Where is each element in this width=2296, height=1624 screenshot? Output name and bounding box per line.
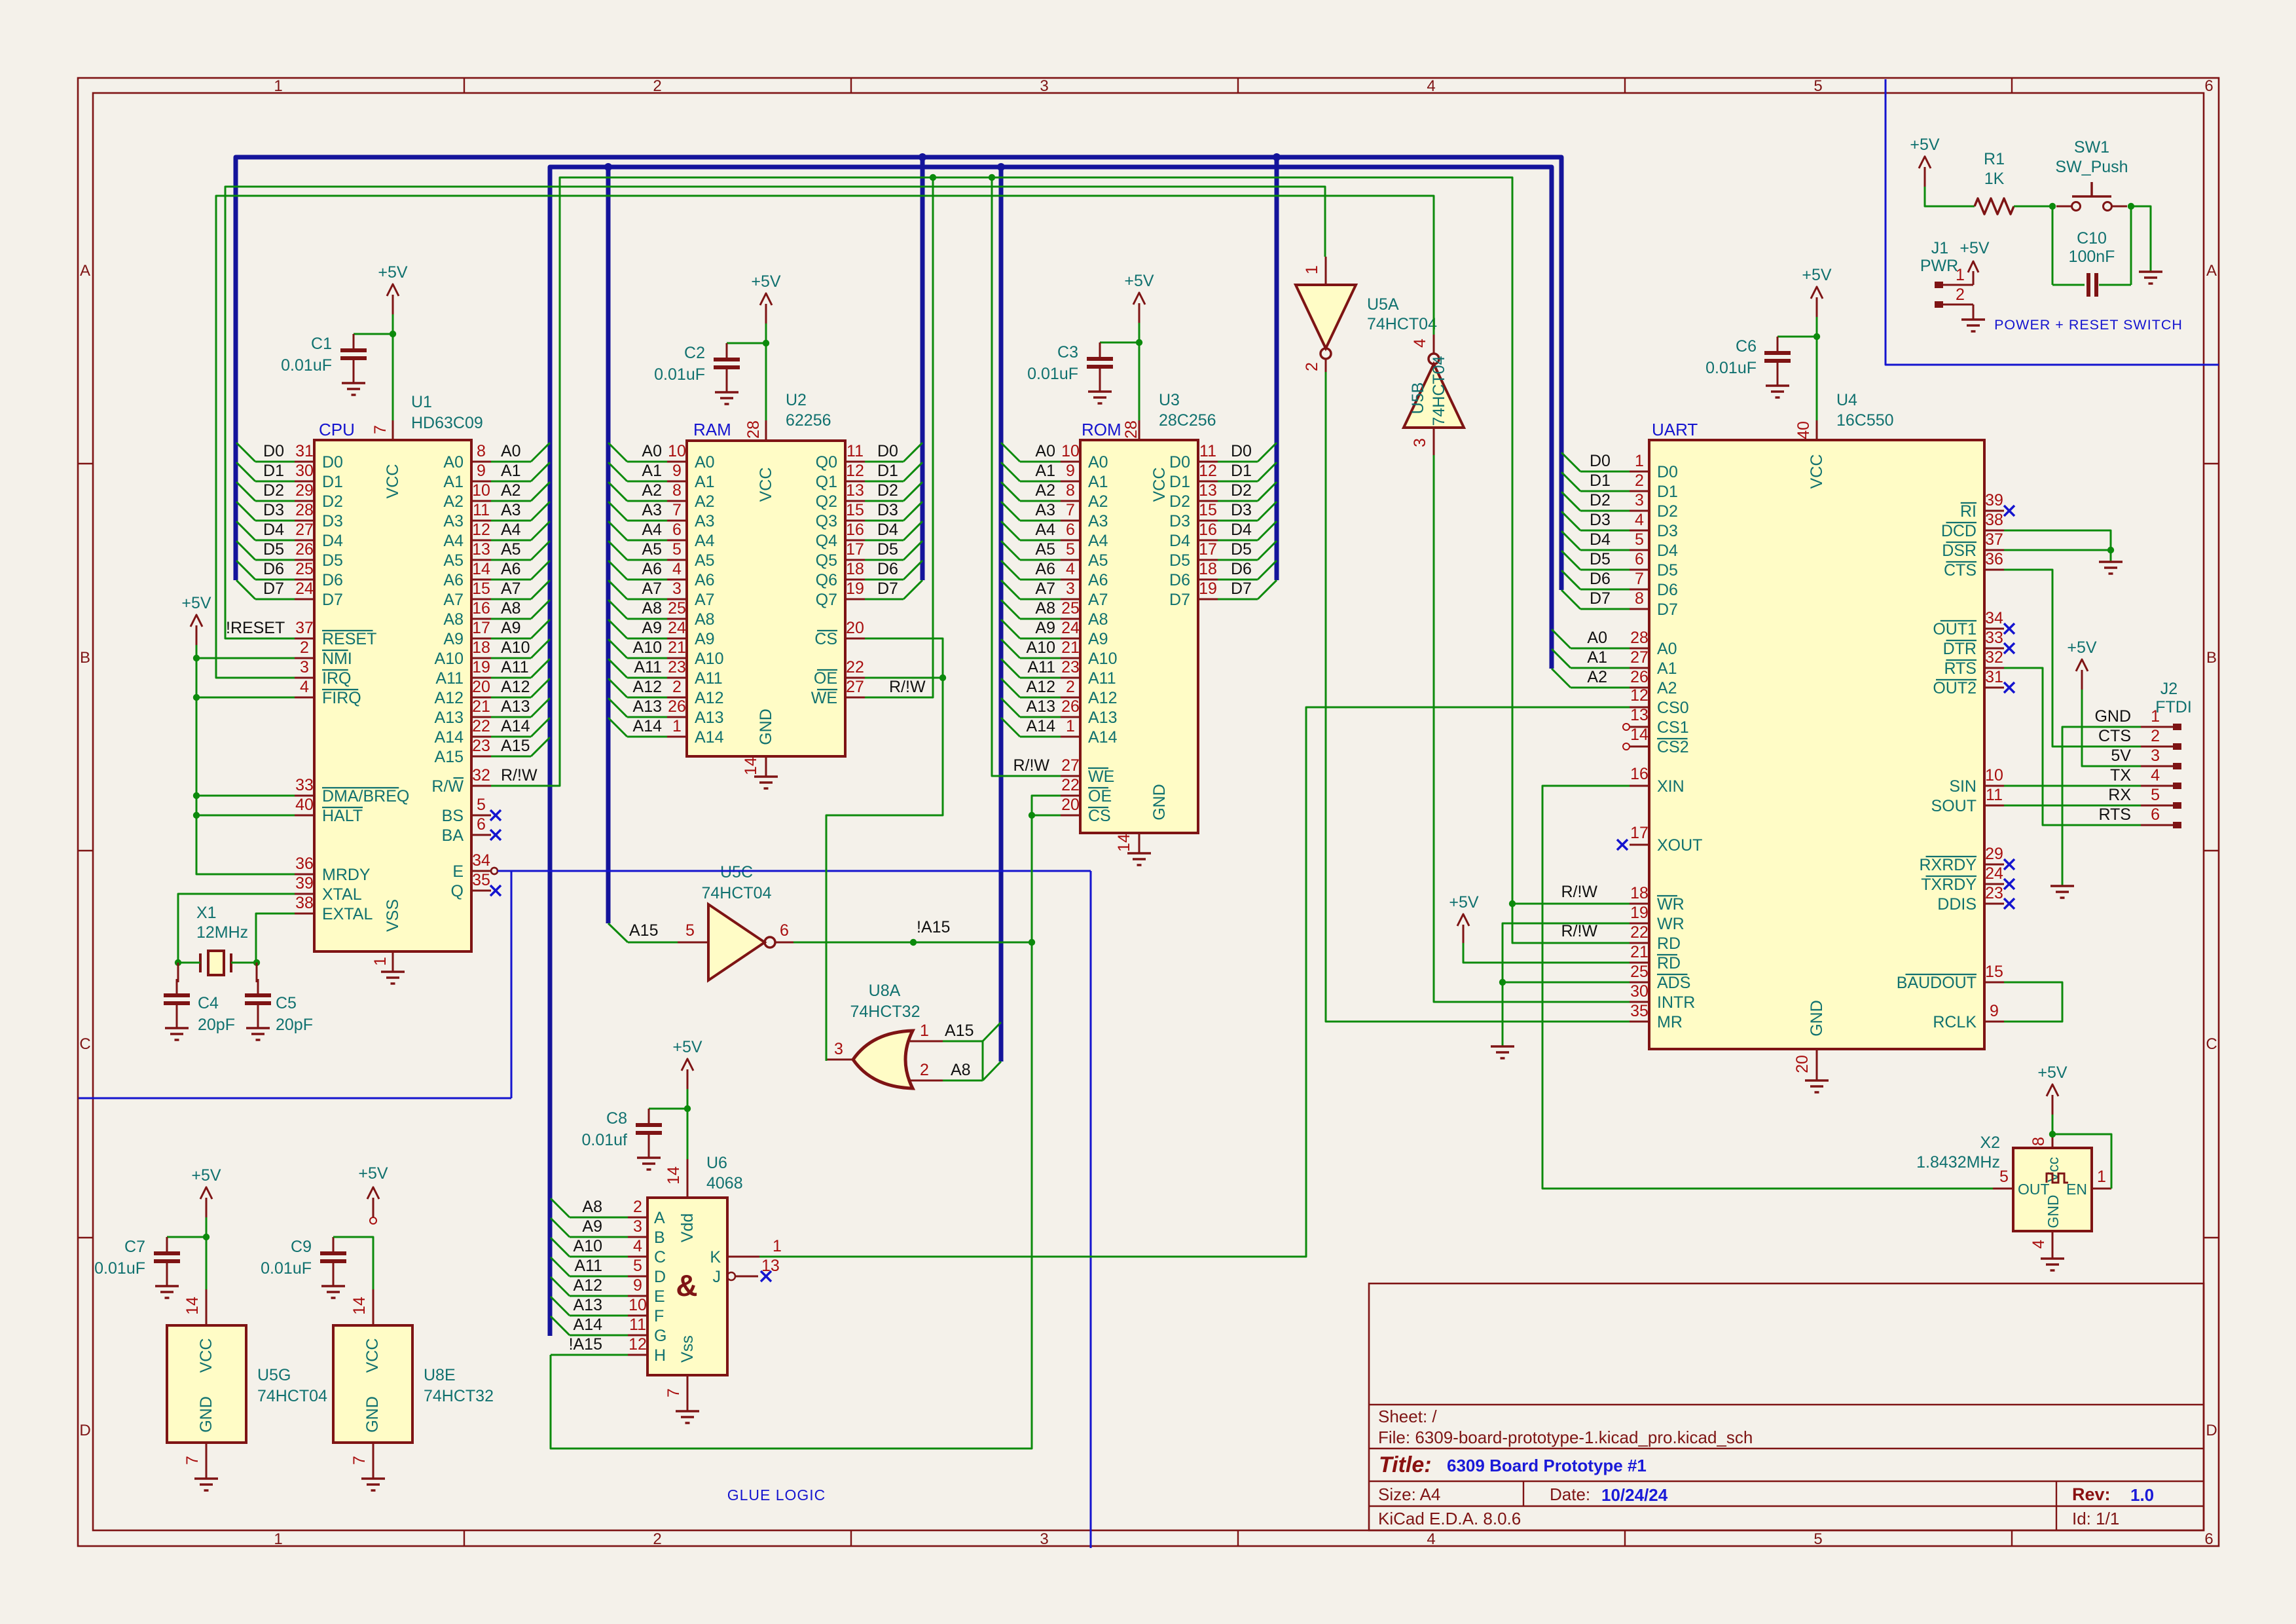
- svg-text:A11: A11: [695, 669, 723, 688]
- svg-text:28: 28: [1630, 629, 1649, 647]
- svg-text:Q7: Q7: [816, 591, 837, 609]
- svg-text:4: 4: [1411, 339, 1429, 348]
- svg-text:DCD: DCD: [1941, 522, 1977, 540]
- svg-text:6: 6: [1635, 550, 1644, 568]
- svg-text:D6: D6: [1590, 570, 1611, 588]
- svg-text:0.01uF: 0.01uF: [94, 1259, 145, 1278]
- svg-text:6: 6: [2204, 77, 2213, 95]
- svg-text:A1: A1: [1088, 473, 1108, 491]
- svg-text:U5A: U5A: [1367, 295, 1399, 314]
- svg-text:5: 5: [1066, 540, 1075, 559]
- svg-text:8: 8: [672, 481, 682, 500]
- svg-text:11: 11: [1199, 442, 1216, 460]
- svg-text:0.01uF: 0.01uF: [1705, 359, 1757, 377]
- svg-text:28: 28: [1122, 420, 1140, 439]
- svg-text:100nF: 100nF: [2069, 248, 2115, 266]
- svg-text:3: 3: [633, 1217, 642, 1236]
- svg-text:D4: D4: [322, 532, 343, 550]
- svg-text:+5V: +5V: [672, 1038, 702, 1056]
- svg-text:CTS: CTS: [1944, 561, 1977, 580]
- svg-text:2: 2: [920, 1061, 929, 1079]
- svg-text:OUT2: OUT2: [1933, 679, 1977, 697]
- svg-text:D4: D4: [1657, 542, 1678, 560]
- svg-text:+5V: +5V: [1910, 136, 1940, 154]
- svg-text:U8E: U8E: [424, 1366, 456, 1384]
- svg-text:A13: A13: [1027, 697, 1055, 716]
- svg-text:2: 2: [300, 638, 309, 657]
- svg-text:A10: A10: [633, 638, 662, 657]
- svg-text:6309 Board Prototype #1: 6309 Board Prototype #1: [1447, 1456, 1647, 1475]
- svg-text:RI: RI: [1960, 502, 1977, 521]
- svg-text:R/!W: R/!W: [889, 678, 926, 696]
- svg-text:D6: D6: [1231, 560, 1252, 578]
- svg-text:D1: D1: [1169, 473, 1190, 491]
- svg-text:22: 22: [846, 658, 864, 676]
- svg-text:4: 4: [2030, 1240, 2048, 1249]
- svg-text:40: 40: [1795, 421, 1813, 439]
- svg-text:+5V: +5V: [751, 272, 781, 291]
- svg-text:26: 26: [668, 697, 686, 716]
- svg-text:8: 8: [1066, 481, 1075, 500]
- svg-text:26: 26: [1061, 697, 1080, 716]
- svg-text:10: 10: [472, 481, 490, 500]
- svg-text:D7: D7: [1231, 580, 1252, 598]
- svg-text:U3: U3: [1159, 391, 1180, 409]
- svg-text:X2: X2: [1980, 1134, 2000, 1152]
- svg-text:4: 4: [1427, 77, 1435, 95]
- svg-text:17: 17: [1199, 540, 1217, 559]
- svg-text:7: 7: [665, 1388, 683, 1397]
- svg-text:20pF: 20pF: [198, 1016, 235, 1034]
- svg-text:14: 14: [742, 757, 760, 775]
- svg-text:J: J: [713, 1268, 721, 1286]
- svg-text:BS: BS: [442, 807, 464, 825]
- svg-text:74HCT32: 74HCT32: [424, 1387, 494, 1405]
- svg-text:1: 1: [920, 1022, 929, 1040]
- svg-text:VCC: VCC: [1150, 468, 1169, 502]
- svg-text:17: 17: [846, 540, 864, 559]
- svg-text:RTS: RTS: [2098, 805, 2131, 824]
- svg-text:A11: A11: [634, 658, 662, 676]
- svg-text:36: 36: [295, 855, 314, 873]
- svg-text:33: 33: [295, 776, 314, 794]
- svg-text:CPU: CPU: [319, 420, 355, 439]
- svg-text:28: 28: [744, 420, 763, 439]
- svg-text:A3: A3: [695, 512, 715, 530]
- svg-text:34: 34: [472, 851, 490, 870]
- svg-text:A9: A9: [642, 619, 662, 637]
- svg-text:BA: BA: [442, 826, 464, 845]
- svg-text:3: 3: [1040, 77, 1048, 95]
- svg-text:12: 12: [629, 1335, 647, 1354]
- svg-text:74HCT04: 74HCT04: [1430, 356, 1448, 426]
- svg-text:A1: A1: [443, 473, 464, 491]
- svg-text:A11: A11: [501, 658, 529, 676]
- svg-text:13: 13: [1199, 481, 1217, 500]
- svg-text:1: 1: [1956, 266, 1965, 284]
- svg-text:10: 10: [1985, 766, 2003, 784]
- svg-text:Title:: Title:: [1379, 1452, 1432, 1477]
- svg-text:D6: D6: [877, 560, 898, 578]
- svg-text:GND: GND: [363, 1396, 382, 1433]
- svg-text:1: 1: [1066, 717, 1075, 735]
- svg-text:CTS: CTS: [2098, 727, 2131, 745]
- svg-text:!A15: !A15: [917, 918, 950, 936]
- svg-text:SIN: SIN: [1949, 777, 1977, 796]
- svg-text:R/!W: R/!W: [1561, 883, 1597, 901]
- svg-text:5: 5: [477, 796, 486, 814]
- svg-text:A1: A1: [501, 462, 521, 480]
- svg-text:A8: A8: [951, 1061, 971, 1079]
- svg-text:6: 6: [477, 815, 486, 834]
- svg-text:6: 6: [2151, 805, 2160, 824]
- svg-text:2: 2: [2151, 727, 2160, 745]
- svg-text:C7: C7: [124, 1238, 145, 1256]
- svg-text:16: 16: [1199, 521, 1217, 539]
- svg-text:18: 18: [1630, 884, 1649, 902]
- svg-text:4: 4: [1066, 560, 1075, 578]
- svg-text:D0: D0: [877, 442, 898, 460]
- svg-text:A10: A10: [1088, 650, 1117, 668]
- svg-text:D4: D4: [1231, 521, 1252, 539]
- svg-text:10: 10: [629, 1296, 647, 1314]
- svg-text:E: E: [452, 862, 464, 881]
- svg-text:SW1: SW1: [2074, 138, 2109, 157]
- svg-text:D1: D1: [322, 473, 343, 491]
- svg-text:A9: A9: [501, 619, 521, 637]
- svg-text:A0: A0: [1088, 453, 1108, 471]
- svg-text:22: 22: [472, 717, 490, 735]
- svg-text:D2: D2: [1657, 502, 1678, 521]
- svg-text:1: 1: [1635, 452, 1644, 470]
- svg-text:U1: U1: [411, 393, 432, 411]
- svg-text:A2: A2: [1587, 668, 1607, 686]
- svg-text:D0: D0: [1590, 452, 1611, 470]
- svg-text:6: 6: [1066, 521, 1075, 539]
- svg-text:ADS: ADS: [1657, 974, 1690, 992]
- svg-text:74HCT04: 74HCT04: [257, 1387, 327, 1405]
- svg-text:A4: A4: [1035, 521, 1055, 539]
- svg-text:D4: D4: [1590, 530, 1611, 549]
- svg-text:A15: A15: [629, 921, 658, 940]
- svg-text:WE: WE: [811, 689, 837, 707]
- svg-text:A4: A4: [642, 521, 662, 539]
- svg-text:A14: A14: [633, 717, 663, 735]
- svg-text:4: 4: [1635, 511, 1644, 529]
- svg-text:A8: A8: [443, 610, 464, 629]
- svg-text:16: 16: [846, 521, 864, 539]
- svg-text:WR: WR: [1657, 915, 1685, 933]
- svg-text:A7: A7: [1035, 580, 1055, 598]
- svg-text:3: 3: [1411, 438, 1429, 447]
- svg-text:A: A: [2206, 262, 2217, 280]
- svg-text:31: 31: [295, 442, 314, 460]
- svg-text:10: 10: [1061, 442, 1080, 460]
- svg-text:D5: D5: [1231, 540, 1252, 559]
- svg-text:6: 6: [672, 521, 682, 539]
- svg-text:14: 14: [1115, 834, 1133, 852]
- svg-text:CS: CS: [1088, 807, 1111, 825]
- svg-text:A13: A13: [1088, 709, 1117, 727]
- svg-text:R1: R1: [1984, 150, 2005, 168]
- svg-text:A0: A0: [695, 453, 715, 471]
- svg-text:R/!W: R/!W: [1013, 756, 1049, 775]
- svg-text:0.01uF: 0.01uF: [261, 1259, 312, 1278]
- svg-text:A: A: [80, 262, 90, 280]
- svg-text:10: 10: [668, 442, 686, 460]
- svg-text:3: 3: [834, 1040, 843, 1058]
- svg-text:11: 11: [847, 442, 864, 460]
- svg-text:27: 27: [1061, 756, 1080, 775]
- svg-text:6: 6: [780, 921, 789, 940]
- svg-text:6: 6: [2204, 1530, 2213, 1548]
- svg-text:20: 20: [472, 678, 490, 696]
- svg-text:D: D: [2206, 1422, 2217, 1439]
- svg-text:DSR: DSR: [1942, 542, 1977, 560]
- svg-text:D3: D3: [1590, 511, 1611, 529]
- svg-text:SW_Push: SW_Push: [2055, 158, 2128, 176]
- svg-text:D1: D1: [1231, 462, 1252, 480]
- svg-text:5: 5: [2151, 786, 2160, 804]
- svg-text:A15: A15: [435, 748, 464, 766]
- svg-text:CS2: CS2: [1657, 738, 1689, 756]
- svg-text:25: 25: [1630, 963, 1649, 981]
- svg-text:HALT: HALT: [322, 807, 363, 825]
- svg-text:!A15: !A15: [569, 1335, 602, 1354]
- svg-text:11: 11: [1986, 786, 2003, 804]
- svg-text:2: 2: [653, 77, 661, 95]
- svg-text:25: 25: [1061, 599, 1080, 618]
- svg-text:A6: A6: [443, 571, 464, 589]
- svg-text:A10: A10: [695, 650, 723, 668]
- svg-text:+5V: +5V: [191, 1166, 221, 1185]
- svg-text:14: 14: [1630, 726, 1649, 744]
- svg-text:D3: D3: [1231, 501, 1252, 519]
- svg-text:A3: A3: [443, 512, 464, 530]
- svg-text:24: 24: [1061, 619, 1080, 637]
- svg-text:R/W: R/W: [431, 777, 464, 796]
- svg-text:5: 5: [1813, 1530, 1822, 1548]
- svg-text:C6: C6: [1736, 337, 1757, 356]
- svg-text:U5C: U5C: [720, 863, 753, 881]
- svg-text:38: 38: [1985, 511, 2003, 529]
- svg-text:30: 30: [295, 462, 314, 480]
- svg-text:21: 21: [472, 697, 490, 716]
- svg-text:22: 22: [1630, 923, 1649, 942]
- svg-text:Q3: Q3: [816, 512, 837, 530]
- svg-text:26: 26: [295, 540, 314, 559]
- svg-text:A11: A11: [574, 1257, 602, 1275]
- svg-text:A2: A2: [642, 481, 662, 500]
- svg-text:VCC: VCC: [197, 1338, 215, 1373]
- svg-text:MRDY: MRDY: [322, 866, 371, 884]
- svg-text:A7: A7: [642, 580, 662, 598]
- svg-text:0.01uf: 0.01uf: [581, 1131, 627, 1149]
- svg-text:16: 16: [1630, 765, 1649, 783]
- svg-text:VCC: VCC: [384, 464, 402, 499]
- svg-text:12MHz: 12MHz: [196, 923, 248, 942]
- svg-text:7: 7: [672, 501, 682, 519]
- svg-text:3: 3: [672, 580, 682, 598]
- svg-text:1.8432MHz: 1.8432MHz: [1916, 1153, 2000, 1172]
- svg-text:+5V: +5V: [1802, 266, 1832, 284]
- svg-text:19: 19: [1199, 580, 1217, 598]
- svg-text:VCC: VCC: [363, 1338, 382, 1373]
- svg-text:18: 18: [1199, 560, 1217, 578]
- svg-text:A6: A6: [1035, 560, 1055, 578]
- svg-text:A14: A14: [695, 728, 724, 747]
- svg-text:A1: A1: [695, 473, 715, 491]
- svg-text:9: 9: [477, 462, 486, 480]
- svg-text:A0: A0: [642, 442, 662, 460]
- svg-text:2: 2: [1303, 362, 1321, 371]
- svg-text:D: D: [79, 1422, 90, 1439]
- svg-text:D7: D7: [877, 580, 898, 598]
- svg-text:FTDI: FTDI: [2155, 698, 2192, 716]
- svg-text:B: B: [654, 1228, 665, 1247]
- svg-text:Vss: Vss: [678, 1335, 697, 1363]
- svg-text:A7: A7: [1088, 591, 1108, 609]
- svg-text:A1: A1: [1657, 659, 1677, 678]
- svg-text:A15: A15: [501, 737, 530, 755]
- svg-text:A3: A3: [642, 501, 662, 519]
- svg-text:D1: D1: [263, 462, 284, 480]
- svg-text:Rev:: Rev:: [2072, 1485, 2111, 1504]
- svg-text:D7: D7: [1169, 591, 1190, 609]
- svg-text:7: 7: [1066, 501, 1075, 519]
- svg-text:GND: GND: [1808, 1000, 1826, 1037]
- svg-text:A10: A10: [501, 638, 530, 657]
- svg-text:F: F: [654, 1307, 664, 1325]
- svg-text:GND: GND: [2045, 1194, 2062, 1228]
- svg-text:31: 31: [1985, 668, 2003, 686]
- svg-text:RX: RX: [2108, 786, 2131, 804]
- svg-text:A13: A13: [695, 709, 723, 727]
- svg-text:37: 37: [295, 619, 314, 637]
- svg-text:5: 5: [633, 1257, 642, 1275]
- svg-text:3: 3: [1040, 1530, 1048, 1548]
- svg-text:A9: A9: [695, 630, 715, 648]
- svg-text:D4: D4: [263, 521, 284, 539]
- svg-text:D6: D6: [1169, 571, 1190, 589]
- svg-text:A8: A8: [695, 610, 715, 629]
- svg-text:A2: A2: [443, 492, 464, 511]
- svg-text:1: 1: [274, 77, 282, 95]
- svg-text:17: 17: [472, 619, 490, 637]
- svg-text:A10: A10: [435, 650, 464, 668]
- svg-text:GND: GND: [1150, 784, 1169, 821]
- svg-text:0.01uF: 0.01uF: [1027, 365, 1078, 383]
- svg-text:A2: A2: [501, 481, 521, 500]
- svg-text:A12: A12: [501, 678, 530, 696]
- svg-text:D5: D5: [877, 540, 898, 559]
- svg-text:27: 27: [1630, 648, 1649, 667]
- svg-text:D3: D3: [877, 501, 898, 519]
- svg-text:3: 3: [300, 658, 309, 676]
- svg-text:A2: A2: [695, 492, 715, 511]
- svg-text:C3: C3: [1057, 343, 1078, 361]
- svg-text:A8: A8: [1035, 599, 1055, 618]
- svg-text:39: 39: [295, 874, 314, 893]
- svg-text:C1: C1: [311, 335, 332, 353]
- svg-text:TXRDY: TXRDY: [1921, 876, 1977, 894]
- svg-text:U2: U2: [786, 391, 807, 409]
- svg-text:62256: 62256: [786, 411, 831, 430]
- svg-text:A12: A12: [1027, 678, 1055, 696]
- svg-text:A5: A5: [443, 551, 464, 570]
- svg-text:U4: U4: [1836, 391, 1857, 409]
- svg-text:A12: A12: [695, 689, 723, 707]
- svg-text:VSS: VSS: [384, 899, 402, 932]
- svg-text:8: 8: [2030, 1137, 2048, 1146]
- svg-text:A4: A4: [501, 521, 521, 539]
- svg-text:OUT1: OUT1: [1933, 620, 1977, 638]
- svg-text:+5V: +5V: [1449, 893, 1479, 912]
- svg-text:4: 4: [300, 678, 309, 696]
- svg-text:D4: D4: [877, 521, 898, 539]
- svg-text:D7: D7: [1590, 589, 1611, 608]
- svg-text:14: 14: [183, 1297, 202, 1315]
- svg-text:D0: D0: [263, 442, 284, 460]
- svg-text:D7: D7: [1657, 600, 1678, 619]
- svg-text:GND: GND: [197, 1396, 215, 1433]
- svg-text:A7: A7: [501, 580, 521, 598]
- svg-text:23: 23: [1985, 884, 2003, 902]
- svg-text:POWER + RESET SWITCH: POWER + RESET SWITCH: [1994, 317, 2183, 333]
- svg-text:U5G: U5G: [257, 1366, 291, 1384]
- svg-text:J2: J2: [2160, 680, 2178, 698]
- svg-text:8: 8: [477, 442, 486, 460]
- svg-text:KiCad E.D.A. 8.0.6: KiCad E.D.A. 8.0.6: [1378, 1509, 1521, 1528]
- svg-text:33: 33: [1985, 629, 2003, 647]
- svg-text:A7: A7: [443, 591, 464, 609]
- svg-text:SOUT: SOUT: [1931, 797, 1977, 815]
- svg-text:C: C: [79, 1035, 90, 1053]
- svg-text:16C550: 16C550: [1836, 411, 1894, 430]
- svg-text:A6: A6: [695, 571, 715, 589]
- svg-text:!RESET: !RESET: [226, 619, 285, 637]
- svg-text:Q2: Q2: [816, 492, 837, 511]
- svg-text:D0: D0: [1657, 463, 1678, 481]
- svg-text:RXRDY: RXRDY: [1919, 856, 1977, 874]
- svg-text:5: 5: [1635, 530, 1644, 549]
- svg-text:U6: U6: [706, 1154, 727, 1172]
- svg-text:38: 38: [295, 894, 314, 912]
- svg-text:A0: A0: [1587, 629, 1607, 647]
- svg-text:CS: CS: [814, 630, 837, 648]
- svg-text:GLUE LOGIC: GLUE LOGIC: [727, 1486, 826, 1504]
- svg-text:16: 16: [472, 599, 490, 618]
- svg-text:13: 13: [472, 540, 490, 559]
- svg-text:R/!W: R/!W: [1561, 922, 1597, 940]
- svg-text:EXTAL: EXTAL: [322, 905, 373, 923]
- svg-text:21: 21: [1061, 638, 1080, 657]
- svg-text:Size: A4: Size: A4: [1378, 1485, 1440, 1504]
- svg-text:A14: A14: [1088, 728, 1118, 747]
- svg-text:DDIS: DDIS: [1937, 895, 1977, 913]
- svg-text:A12: A12: [1088, 689, 1117, 707]
- svg-text:26: 26: [1630, 668, 1649, 686]
- svg-text:7: 7: [371, 425, 390, 434]
- svg-text:35: 35: [472, 871, 490, 889]
- svg-text:A5: A5: [1088, 551, 1108, 570]
- svg-text:0.01uF: 0.01uF: [281, 356, 332, 375]
- svg-text:&: &: [676, 1268, 697, 1302]
- svg-text:1: 1: [2097, 1168, 2106, 1186]
- svg-text:D5: D5: [322, 551, 343, 570]
- svg-text:10/24/24: 10/24/24: [1601, 1485, 1668, 1505]
- svg-text:25: 25: [668, 599, 686, 618]
